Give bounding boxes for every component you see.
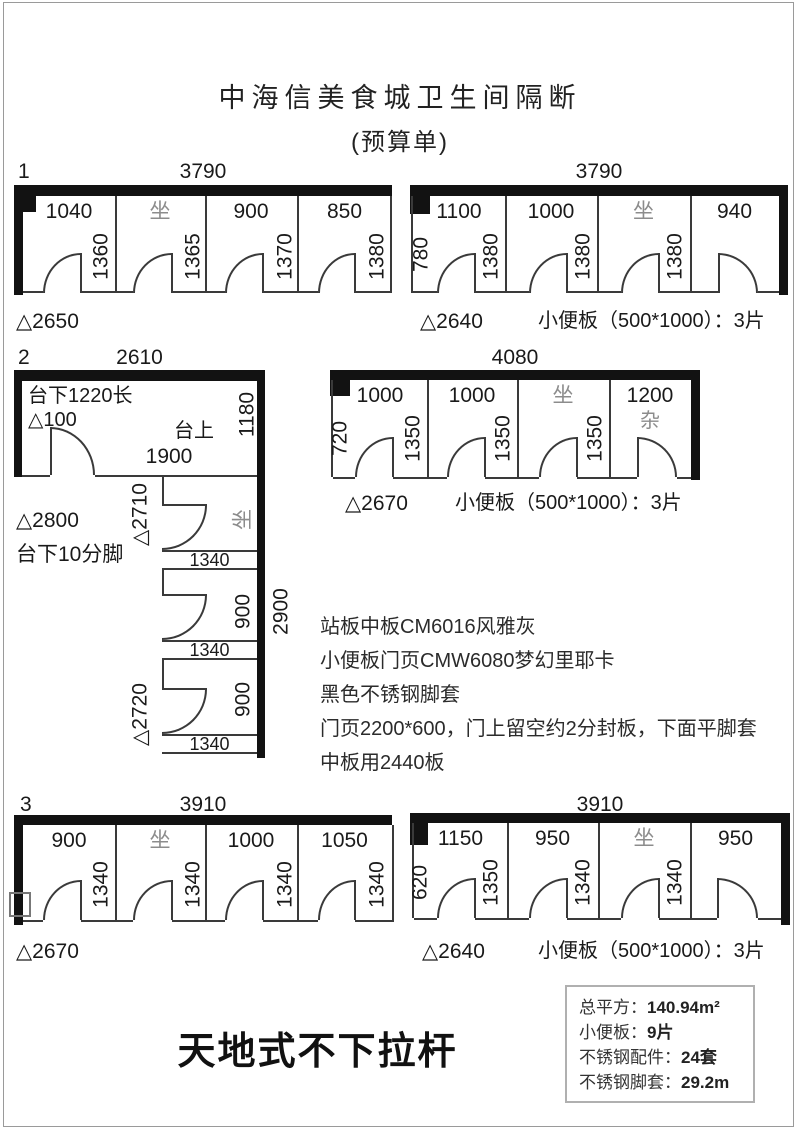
door-leaf-line bbox=[637, 437, 639, 477]
door-arc bbox=[355, 437, 393, 477]
left-width-label: 780 bbox=[411, 230, 432, 280]
summary-label: 小便板： bbox=[579, 1023, 647, 1042]
left-width-label: 620 bbox=[410, 858, 431, 908]
front-wall-line bbox=[263, 291, 318, 293]
door-arc bbox=[318, 880, 355, 920]
note-line: 小便板门页CMW6080梦幻里耶卡 bbox=[320, 644, 790, 678]
wall bbox=[410, 185, 788, 196]
stall-width-label: 1000 bbox=[427, 384, 517, 407]
door-width-label: 1380 bbox=[665, 227, 686, 287]
door-arc bbox=[43, 880, 81, 920]
door-leaf-line bbox=[474, 253, 476, 293]
urinal-note: 小便板（500*1000）：3片 bbox=[538, 310, 765, 332]
toilet-stall-label: 坐 bbox=[517, 384, 609, 407]
stall-width-label: 950 bbox=[507, 827, 598, 850]
diagram-mid-right-plan: 4080 1000 1000 坐 1200 杂 720 1350 1350 13… bbox=[330, 346, 710, 521]
summary-row: 不锈钢配件：24套 bbox=[579, 1045, 741, 1070]
page-subtitle: (预算单) bbox=[0, 122, 800, 157]
stall-width-label: 900 bbox=[23, 829, 115, 852]
front-wall-line bbox=[263, 920, 318, 922]
door-arc bbox=[529, 878, 567, 918]
door-arc bbox=[718, 253, 758, 293]
page-title: 中海信美食城卫生间隔断 bbox=[0, 76, 800, 115]
summary-row: 不锈钢脚套：29.2m bbox=[579, 1070, 741, 1095]
summary-box: 总平方：140.94m² 小便板：9片 不锈钢配件：24套 不锈钢脚套：29.2… bbox=[565, 985, 755, 1103]
spec-notes: 站板中板CM6016风雅灰 小便板门页CMW6080梦幻里耶卡 黑色不锈钢脚套 … bbox=[320, 610, 790, 780]
note-line: 站板中板CM6016风雅灰 bbox=[320, 610, 790, 644]
door-arc bbox=[539, 437, 577, 477]
door-leaf-line bbox=[262, 880, 264, 920]
summary-label: 总平方： bbox=[579, 998, 647, 1017]
summary-value: 24套 bbox=[681, 1048, 717, 1067]
diagram-1-plan: 1 3790 1040 坐 900 850 1360 1365 1370 138… bbox=[14, 160, 394, 330]
door-width-label: 1340 bbox=[367, 855, 388, 915]
diagram-bottom-right-plan: 3910 1150 950 坐 950 620 1350 1340 1340 △… bbox=[410, 793, 795, 968]
front-wall-line bbox=[333, 477, 355, 479]
misc-stall-label: 杂 bbox=[609, 410, 691, 432]
front-wall-line bbox=[393, 477, 447, 479]
door-arc bbox=[318, 253, 355, 293]
door-arc bbox=[43, 253, 81, 293]
stall-width-label: 1150 bbox=[414, 827, 507, 850]
door-arc bbox=[437, 878, 475, 918]
door-width-label: 1380 bbox=[367, 227, 388, 287]
stall-width-label: 1050 bbox=[297, 829, 392, 852]
door-width-label: 1350 bbox=[481, 853, 502, 913]
delta-2710-label: △2710 bbox=[130, 460, 151, 570]
stall-width-label: 950 bbox=[690, 827, 781, 850]
front-wall-line bbox=[677, 477, 691, 479]
door-width-label: 1340 bbox=[183, 855, 204, 915]
overall-width-dim: 3910 bbox=[14, 793, 392, 816]
door-leaf-line bbox=[80, 253, 82, 293]
door-leaf-line bbox=[566, 878, 568, 918]
overall-width-dim: 3790 bbox=[410, 160, 788, 183]
wall bbox=[410, 813, 790, 823]
door-arc bbox=[50, 427, 95, 475]
door-width-label: 1340 bbox=[665, 853, 686, 913]
door-width-label: 1360 bbox=[91, 227, 112, 287]
front-wall-line bbox=[758, 918, 781, 920]
door-arc bbox=[637, 437, 677, 477]
height-note: △2670 bbox=[16, 940, 79, 963]
door-arc bbox=[621, 878, 659, 918]
front-wall-line bbox=[172, 291, 225, 293]
door-arc bbox=[717, 878, 758, 918]
stall-width-label: 940 bbox=[690, 200, 779, 223]
summary-value: 29.2m bbox=[681, 1073, 729, 1092]
diagram-top-right-plan: 3790 1100 1000 坐 940 780 1380 1380 1380 … bbox=[410, 160, 790, 335]
door-width-label: 1350 bbox=[585, 409, 606, 469]
drawing-sheet: 中海信美食城卫生间隔断 (预算单) 1 3790 1040 坐 900 850 … bbox=[0, 0, 800, 1131]
note-line: 中板用2440板 bbox=[320, 746, 790, 780]
front-wall-line bbox=[567, 291, 621, 293]
door-arc bbox=[133, 880, 172, 920]
overall-width-dim: 4080 bbox=[330, 346, 700, 369]
diagram-3-plan: 3 3910 900 坐 1000 1050 1340 1340 1340 13… bbox=[14, 793, 399, 968]
right-top-dim-label: 1180 bbox=[237, 385, 258, 445]
wall bbox=[781, 813, 790, 925]
wall-niche-symbol bbox=[9, 892, 31, 917]
door-leaf-line bbox=[474, 878, 476, 918]
stall-width-label: 1000 bbox=[205, 829, 297, 852]
wall bbox=[779, 185, 788, 295]
stall-width-label: 1100 bbox=[413, 200, 505, 223]
door-leaf-line bbox=[354, 253, 356, 293]
partition-line bbox=[162, 658, 257, 660]
door-arc bbox=[529, 253, 567, 293]
height-note: △2640 bbox=[422, 940, 485, 963]
front-wall-line bbox=[172, 920, 225, 922]
front-wall-line bbox=[413, 291, 437, 293]
interior-wall-line bbox=[95, 475, 257, 477]
bottom-line bbox=[162, 752, 257, 754]
door-arc bbox=[162, 595, 207, 640]
stall-width-label: 1040 bbox=[23, 200, 115, 223]
door-arc bbox=[437, 253, 475, 293]
door-arc bbox=[162, 689, 207, 734]
front-wall-line bbox=[23, 920, 43, 922]
summary-label: 不锈钢脚套： bbox=[579, 1073, 681, 1092]
height-note: △2650 bbox=[16, 310, 79, 333]
front-wall-line bbox=[659, 291, 718, 293]
partition-line bbox=[162, 568, 257, 570]
door-width-label: 1380 bbox=[481, 227, 502, 287]
front-wall-line bbox=[577, 477, 637, 479]
door-width-label: 1340 bbox=[275, 855, 296, 915]
front-wall-line bbox=[475, 291, 529, 293]
front-wall-line bbox=[81, 920, 133, 922]
door-arc bbox=[621, 253, 659, 293]
front-wall-line bbox=[22, 475, 50, 477]
front-wall-line bbox=[485, 477, 539, 479]
toilet-stall-label: 坐 bbox=[233, 500, 254, 540]
summary-value: 140.94m² bbox=[647, 998, 720, 1017]
height-note: △2800 bbox=[16, 509, 79, 532]
front-wall-line bbox=[81, 291, 133, 293]
toilet-stall-label: 坐 bbox=[597, 200, 690, 223]
wall bbox=[330, 370, 700, 380]
feet-note: 台下10分脚 bbox=[16, 543, 123, 566]
front-wall-line bbox=[355, 291, 392, 293]
summary-label: 不锈钢配件： bbox=[579, 1048, 681, 1067]
counter-top-label: 台上 bbox=[174, 420, 214, 442]
end-panel-line bbox=[392, 825, 394, 920]
wall bbox=[14, 370, 265, 381]
height-note: △2640 bbox=[420, 310, 483, 333]
door-leaf-line bbox=[354, 880, 356, 920]
stall-width-label: 1000 bbox=[333, 384, 427, 407]
door-leaf-line bbox=[566, 253, 568, 293]
door-leaf-line bbox=[171, 253, 173, 293]
door-width-label: 1340 bbox=[91, 855, 112, 915]
toilet-stall-label: 坐 bbox=[115, 200, 205, 223]
door-width-label: 1340 bbox=[573, 853, 594, 913]
right-total-dim-label: 2900 bbox=[271, 582, 292, 642]
door-width-label: 1365 bbox=[183, 227, 204, 287]
wall bbox=[14, 815, 392, 825]
stall-width-label: 900 bbox=[205, 200, 297, 223]
door-arc bbox=[447, 437, 485, 477]
stall-side-line bbox=[162, 477, 164, 505]
door-leaf-line bbox=[392, 437, 394, 477]
overall-width-dim: 3790 bbox=[14, 160, 392, 183]
front-wall-line bbox=[414, 918, 437, 920]
door-leaf-line bbox=[718, 253, 720, 293]
front-wall-line bbox=[758, 291, 779, 293]
door-arc bbox=[133, 253, 172, 293]
urinal-note: 小便板（500*1000）：3片 bbox=[455, 492, 682, 514]
front-wall-line bbox=[567, 918, 621, 920]
delta-2720-label: △2720 bbox=[130, 660, 151, 770]
door-leaf-line bbox=[658, 878, 660, 918]
stall-side-line bbox=[162, 570, 164, 595]
stall-width-label: 1200 bbox=[609, 384, 691, 407]
front-wall-line bbox=[23, 291, 43, 293]
door-arc bbox=[225, 880, 263, 920]
summary-row: 小便板：9片 bbox=[579, 1020, 741, 1045]
door-leaf-line bbox=[484, 437, 486, 477]
front-wall-line bbox=[659, 918, 717, 920]
left-width-label: 720 bbox=[330, 414, 351, 464]
toilet-stall-label: 坐 bbox=[115, 829, 205, 852]
front-wall-line bbox=[475, 918, 529, 920]
overall-width-dim: 2610 bbox=[14, 346, 265, 369]
stall-width-label: 900 bbox=[233, 675, 254, 725]
note-line: 黑色不锈钢脚套 bbox=[320, 678, 790, 712]
door-width-label: 1350 bbox=[403, 409, 424, 469]
height-note: △2670 bbox=[345, 492, 408, 515]
wall bbox=[691, 370, 700, 480]
stall-width-label: 900 bbox=[233, 587, 254, 637]
diagram-2-plan: 2 2610 台下1220长 △100 台上 1180 1900 △2800 台… bbox=[14, 346, 304, 776]
stall-width-label: 850 bbox=[297, 200, 392, 223]
door-leaf-line bbox=[80, 880, 82, 920]
summary-value: 9片 bbox=[647, 1023, 673, 1042]
door-leaf-line bbox=[658, 253, 660, 293]
wall bbox=[14, 185, 392, 196]
stall-width-label: 1000 bbox=[505, 200, 597, 223]
door-arc bbox=[162, 505, 207, 550]
installation-type-label: 天地式不下拉杆 bbox=[95, 1020, 540, 1075]
door-leaf-line bbox=[262, 253, 264, 293]
door-width-label: 1380 bbox=[573, 227, 594, 287]
front-wall-line bbox=[355, 920, 394, 922]
door-leaf-line bbox=[171, 880, 173, 920]
door-leaf-line bbox=[717, 878, 719, 918]
urinal-note: 小便板（500*1000）：3片 bbox=[538, 940, 765, 962]
door-arc bbox=[225, 253, 263, 293]
toilet-stall-label: 坐 bbox=[598, 827, 690, 850]
door-width-label: 1350 bbox=[493, 409, 514, 469]
wall bbox=[14, 370, 22, 477]
door-width-label: 1370 bbox=[275, 227, 296, 287]
under-counter-note: 台下1220长 bbox=[28, 385, 133, 407]
note-line: 门页2200*600，门上留空约2分封板，下面平脚套 bbox=[320, 712, 790, 746]
door-leaf-line bbox=[576, 437, 578, 477]
summary-row: 总平方：140.94m² bbox=[579, 995, 741, 1020]
stall-side-line bbox=[162, 660, 164, 688]
